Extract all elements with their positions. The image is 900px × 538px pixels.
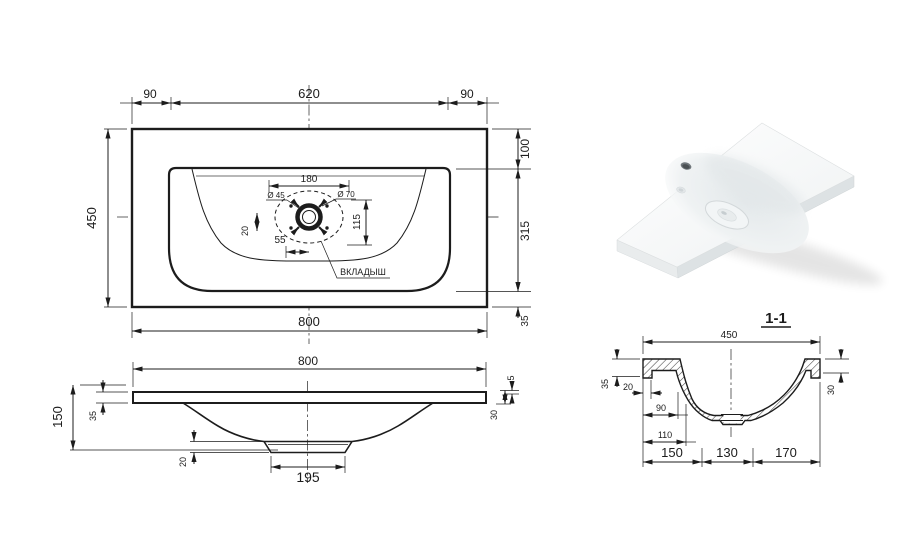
dim-label-450-section: 450 (721, 330, 738, 341)
dim-label-315: 315 (518, 221, 532, 241)
dim-label-30-section: 30 (826, 385, 836, 395)
dim-label-180: 180 (301, 174, 318, 185)
dim-35-section: 35 (600, 349, 640, 389)
mount-dot (289, 226, 292, 229)
dim-195-front: 195 (271, 456, 345, 485)
dim-row-top: 90 620 90 (120, 86, 499, 124)
mount-dot (325, 226, 328, 229)
dim-label-90-right: 90 (460, 87, 474, 101)
drawing-canvas: 180 Ø 45 Ø 70 115 20 55 (0, 0, 900, 538)
dim-5-front: 5 (500, 375, 519, 401)
dim-110-section: 110 (643, 404, 696, 446)
dim-label-195: 195 (296, 469, 320, 485)
bowl-underside (183, 403, 433, 442)
dim-label-35-section: 35 (600, 379, 610, 389)
dim-label-dia70: Ø 70 (337, 190, 355, 199)
dim-label-dia45: Ø 45 (267, 191, 285, 200)
dim-label-115: 115 (352, 214, 363, 230)
insert-label: ВКЛАДЫШ (340, 267, 386, 277)
dim-450-section: 450 (643, 330, 820, 354)
dim-label-20-front: 20 (178, 457, 188, 467)
countertop-outline (132, 129, 487, 307)
dim-label-90-section: 90 (656, 403, 666, 413)
dim-label-130-section: 130 (716, 445, 738, 460)
technical-drawing-page: 180 Ø 45 Ø 70 115 20 55 (0, 0, 900, 538)
dim-800-front: 800 (133, 354, 486, 387)
dim-label-5-front: 5 (506, 375, 516, 380)
dim-label-30-front: 30 (489, 410, 499, 420)
section-title: 1-1 (765, 310, 787, 327)
dim-label-35: 35 (520, 315, 531, 327)
section-view: 1-1 450 35 20 (600, 310, 849, 467)
mount-dot (289, 204, 292, 207)
dim-label-150-front: 150 (50, 406, 65, 428)
dim-label-55: 55 (274, 235, 286, 246)
slab-profile (133, 392, 486, 403)
dim-label-20-section: 20 (623, 382, 633, 392)
drain-recess-gap (724, 410, 741, 424)
mount-dot (325, 204, 328, 207)
dim-450-left: 450 (84, 129, 127, 307)
dim-label-100: 100 (518, 139, 532, 159)
dim-label-20: 20 (240, 226, 250, 236)
front-view: 800 150 35 20 (50, 354, 519, 485)
dim-label-170-section: 170 (775, 445, 797, 460)
dim-label-800: 800 (298, 314, 320, 329)
dim-30-section: 30 (823, 349, 849, 395)
dim-label-620: 620 (298, 86, 320, 101)
drain-foot (264, 442, 352, 453)
dim-label-800-front: 800 (298, 354, 318, 368)
dim-35-front: 35 (88, 380, 128, 421)
dim-30-front: 30 (489, 391, 511, 421)
dim-label-90-left: 90 (143, 87, 157, 101)
dim-label-450: 450 (84, 207, 99, 229)
dim-20-section: 20 (623, 378, 662, 467)
dim-label-150-section: 150 (661, 445, 683, 460)
dim-90-section: 90 (643, 392, 688, 419)
top-view: 180 Ø 45 Ø 70 115 20 55 (84, 85, 532, 344)
dim-label-110-section: 110 (658, 430, 672, 440)
dim-800-bottom: 800 (132, 312, 487, 338)
dim-20-front: 20 (178, 430, 269, 467)
product-photo-3d (617, 123, 887, 296)
dim-label-35-front: 35 (88, 411, 98, 421)
